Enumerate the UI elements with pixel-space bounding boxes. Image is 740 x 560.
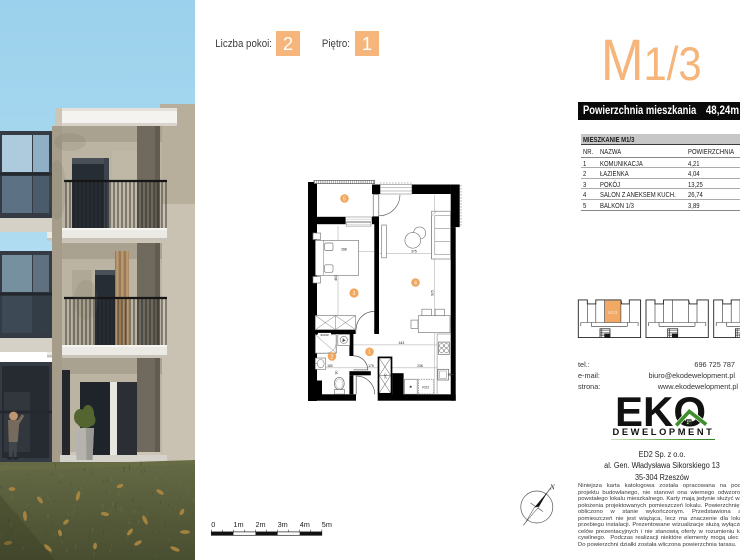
svg-text:4m: 4m <box>300 520 310 529</box>
svg-text:140: 140 <box>384 373 388 379</box>
svg-text:N: N <box>549 484 555 492</box>
svg-text:0: 0 <box>211 520 215 529</box>
svg-text:3m: 3m <box>278 520 288 529</box>
svg-text:175: 175 <box>368 364 374 368</box>
svg-text:2: 2 <box>331 354 334 360</box>
svg-text:1m: 1m <box>233 520 243 529</box>
svg-text:90: 90 <box>335 371 339 375</box>
svg-text:905: 905 <box>430 290 434 296</box>
svg-text:236: 236 <box>417 364 423 368</box>
svg-text:3: 3 <box>353 291 356 297</box>
svg-text:1: 1 <box>368 350 371 356</box>
svg-text:M1/3: M1/3 <box>608 310 618 315</box>
svg-text:4: 4 <box>414 280 417 286</box>
svg-text:ROZ: ROZ <box>422 385 429 389</box>
svg-text:90x90: 90x90 <box>320 333 329 337</box>
svg-text:375: 375 <box>411 249 417 253</box>
svg-text:5m: 5m <box>322 520 332 529</box>
svg-text:460: 460 <box>334 275 338 281</box>
svg-text:5: 5 <box>343 196 346 202</box>
svg-text:180: 180 <box>327 364 333 368</box>
svg-text:2m: 2m <box>256 520 266 529</box>
svg-text:288: 288 <box>341 248 347 252</box>
svg-text:443: 443 <box>399 341 405 345</box>
